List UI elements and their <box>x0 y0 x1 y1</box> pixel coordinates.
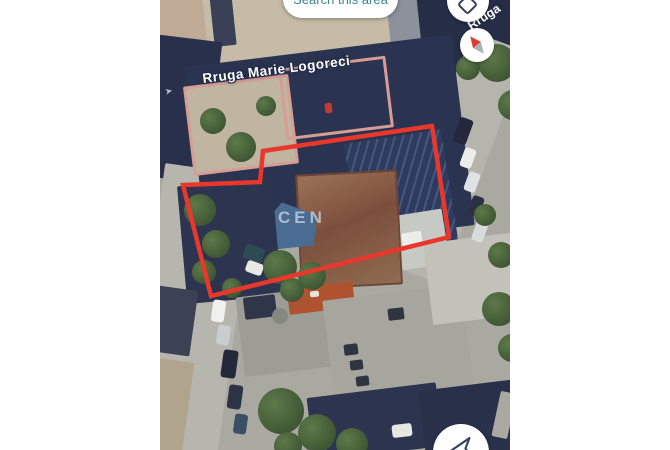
screenshot-root: ➤ CEN Rruga Marie Logoreci Rruga Search … <box>0 0 670 450</box>
parked-car <box>216 324 232 346</box>
ac-unit <box>349 359 363 371</box>
compass-button[interactable] <box>460 28 494 62</box>
rooftop-red-object <box>324 103 332 114</box>
ac-unit <box>387 307 404 321</box>
tree <box>256 96 276 116</box>
diamond-bookmark-icon <box>457 0 478 15</box>
parked-car <box>226 384 243 410</box>
tree <box>488 242 510 268</box>
parked-car <box>233 413 249 435</box>
tree <box>192 260 216 284</box>
map-canvas[interactable]: ➤ CEN Rruga Marie Logoreci Rruga Search … <box>160 0 510 450</box>
tree <box>200 108 226 134</box>
tree <box>258 388 304 434</box>
ac-unit <box>355 375 369 387</box>
water-tank <box>272 308 288 324</box>
tree <box>202 230 230 258</box>
tree <box>298 414 336 450</box>
parked-car <box>220 349 239 379</box>
tree <box>222 278 242 298</box>
road-direction-arrow-icon: ➤ <box>164 85 174 97</box>
search-this-area-button[interactable]: Search this area <box>283 0 398 18</box>
parked-car <box>391 423 412 438</box>
tree <box>184 194 216 226</box>
compass-needle-icon <box>466 33 487 56</box>
tree <box>498 334 510 362</box>
tree <box>280 278 304 302</box>
navigation-arrow-icon <box>446 433 475 450</box>
tree <box>474 204 496 226</box>
map-watermark: CEN <box>278 208 326 228</box>
roof-vent <box>310 290 320 297</box>
tree <box>482 292 510 326</box>
alley-shadow-top <box>209 0 236 47</box>
ac-unit <box>343 343 358 356</box>
tree <box>226 132 256 162</box>
